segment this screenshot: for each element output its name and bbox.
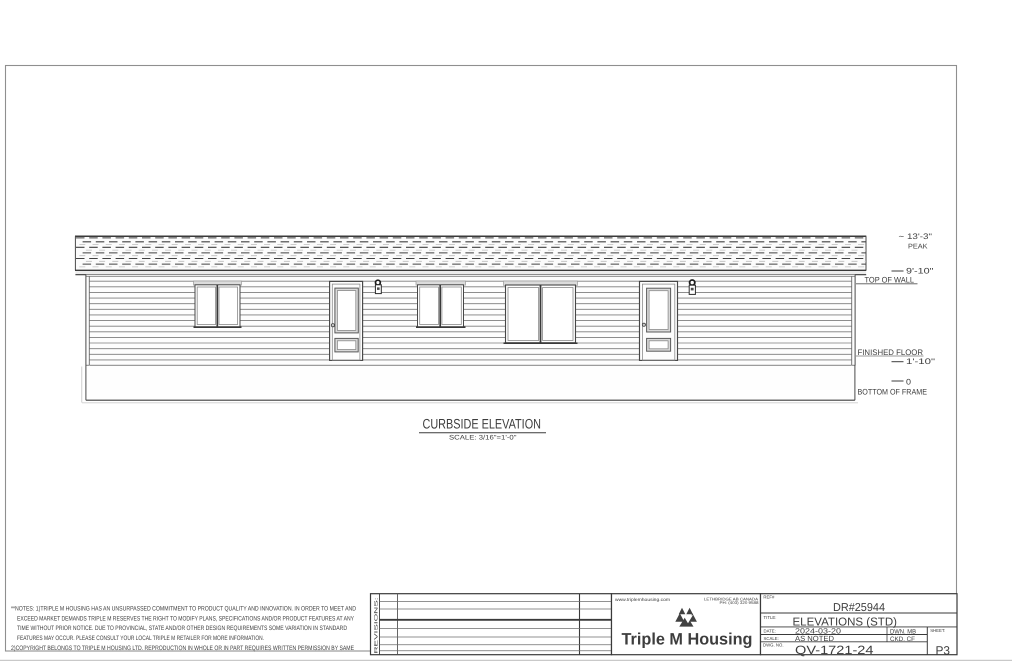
svg-text:PH: (403) 320 9588: PH: (403) 320 9588 xyxy=(720,600,760,605)
svg-text:AS NOTED: AS NOTED xyxy=(795,634,835,643)
svg-text:DATE:: DATE: xyxy=(764,629,776,634)
svg-text:BOTTOM OF FRAME: BOTTOM OF FRAME xyxy=(858,387,928,396)
svg-text:~ 13'-3": ~ 13'-3" xyxy=(899,232,933,241)
svg-text:0: 0 xyxy=(906,377,912,386)
svg-text:CKD. CF: CKD. CF xyxy=(890,636,915,643)
svg-text:DWG. NO.: DWG. NO. xyxy=(763,642,784,647)
svg-text:REF#: REF# xyxy=(763,595,775,600)
svg-text:PEAK: PEAK xyxy=(908,244,928,251)
svg-text:www.triplemhousing.com: www.triplemhousing.com xyxy=(615,597,670,602)
svg-text:EXCEED MARKET DEMANDS TRIPLE M: EXCEED MARKET DEMANDS TRIPLE M RESERVES … xyxy=(17,615,355,622)
svg-text:TITLE:: TITLE: xyxy=(764,615,777,620)
svg-text:SCALE:: SCALE: xyxy=(764,636,779,641)
svg-text:1'-10": 1'-10" xyxy=(906,357,935,366)
svg-text:P3: P3 xyxy=(936,643,951,657)
svg-text:DWN. MB: DWN. MB xyxy=(890,628,916,635)
svg-text:SHEET:: SHEET: xyxy=(930,628,945,633)
svg-text:TIME WITHOUT PRIOR NOTICE. DU: TIME WITHOUT PRIOR NOTICE. DUE TO PROVIN… xyxy=(17,625,347,632)
svg-text:REVISIONS:: REVISIONS: xyxy=(374,598,380,654)
svg-text:DR#25944: DR#25944 xyxy=(833,602,886,614)
svg-text:TOP OF WALL: TOP OF WALL xyxy=(865,276,915,285)
svg-text:9'-10": 9'-10" xyxy=(906,267,934,276)
svg-text:2)COPYRIGHT BELONGS TO TRIPLE: 2)COPYRIGHT BELONGS TO TRIPLE M HOUSING … xyxy=(11,645,354,652)
svg-text:QV-1721-24: QV-1721-24 xyxy=(795,643,874,657)
svg-text:**NOTES: 1)TRIPLE M HOUSING HA: **NOTES: 1)TRIPLE M HOUSING HAS AN UNSUR… xyxy=(11,605,356,612)
svg-text:CURBSIDE ELEVATION: CURBSIDE ELEVATION xyxy=(423,416,542,431)
svg-text:SCALE: 3/16"=1'-0": SCALE: 3/16"=1'-0" xyxy=(449,435,517,442)
svg-text:FEATURES MAY OCCUR. PLEASE CO: FEATURES MAY OCCUR. PLEASE CONSULT YOUR … xyxy=(17,635,264,642)
svg-text:Triple M Housing: Triple M Housing xyxy=(622,630,753,649)
